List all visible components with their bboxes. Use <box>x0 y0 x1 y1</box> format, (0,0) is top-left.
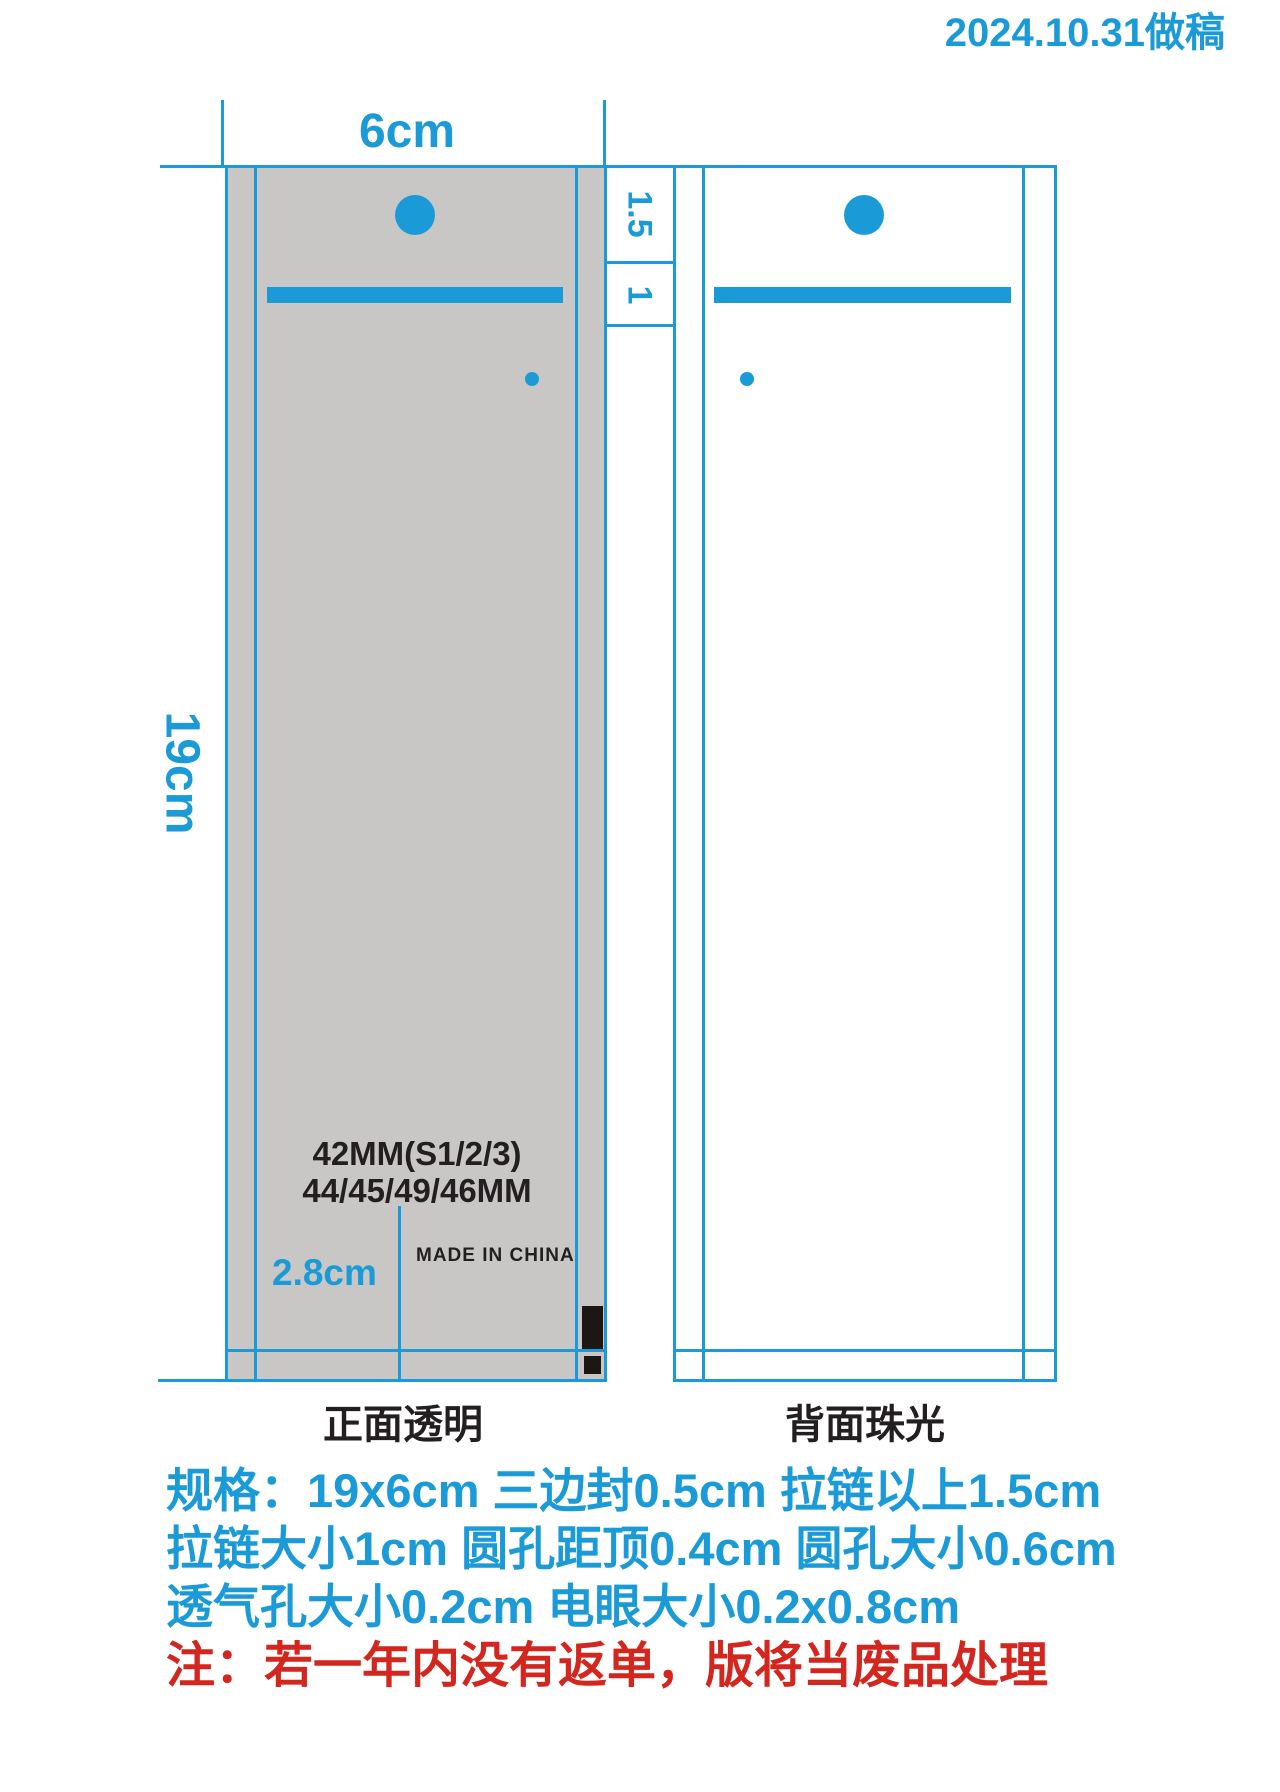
back-hang-hole <box>844 195 884 235</box>
back-bag-outline <box>673 165 1057 1382</box>
width-dimension-label: 6cm <box>359 104 455 159</box>
front-zipper-bar <box>267 287 563 303</box>
front-size-text-line2: 44/45/49/46MM <box>302 1172 531 1210</box>
front-vent-hole <box>525 372 539 386</box>
dimension-line-bottom-extension <box>158 1379 228 1382</box>
spec-note-red: 注：若一年内没有返单，版将当废品处理 <box>166 1626 1048 1697</box>
front-left-seal-line <box>254 165 257 1382</box>
date-note: 2024.10.31做稿 <box>945 0 1225 58</box>
zipper-dimension-label: 1 <box>620 286 659 305</box>
back-bottom-seal-line <box>673 1349 1057 1352</box>
dimension-tick-width-right <box>603 100 606 168</box>
eye-offset-measure-line <box>398 1206 401 1381</box>
electric-eye-mark-lower <box>584 1356 601 1374</box>
front-hang-hole <box>395 195 435 235</box>
above-zipper-dimension-label: 1.5 <box>620 190 659 237</box>
front-bottom-seal-line <box>225 1349 607 1352</box>
front-origin-text: MADE IN CHINA <box>416 1245 575 1267</box>
eye-offset-label: 2.8cm <box>272 1252 377 1294</box>
packaging-spec-sheet: 2024.10.31做稿 6cm 19cm 1.5 1 42MM(S1/2/3)… <box>0 0 1280 1792</box>
front-bag-caption: 正面透明 <box>323 1392 483 1450</box>
back-vent-hole <box>740 372 754 386</box>
front-size-text-line1: 42MM(S1/2/3) <box>312 1135 521 1173</box>
dimension-tick-width-left <box>221 100 224 168</box>
back-bag-caption: 背面珠光 <box>785 1392 945 1450</box>
back-zipper-bar <box>714 287 1011 303</box>
back-left-seal-line <box>702 165 705 1382</box>
front-right-seal-line <box>575 165 578 1382</box>
electric-eye-mark-upper <box>582 1306 603 1352</box>
height-dimension-label: 19cm <box>155 712 210 835</box>
back-right-seal-line <box>1022 165 1025 1382</box>
